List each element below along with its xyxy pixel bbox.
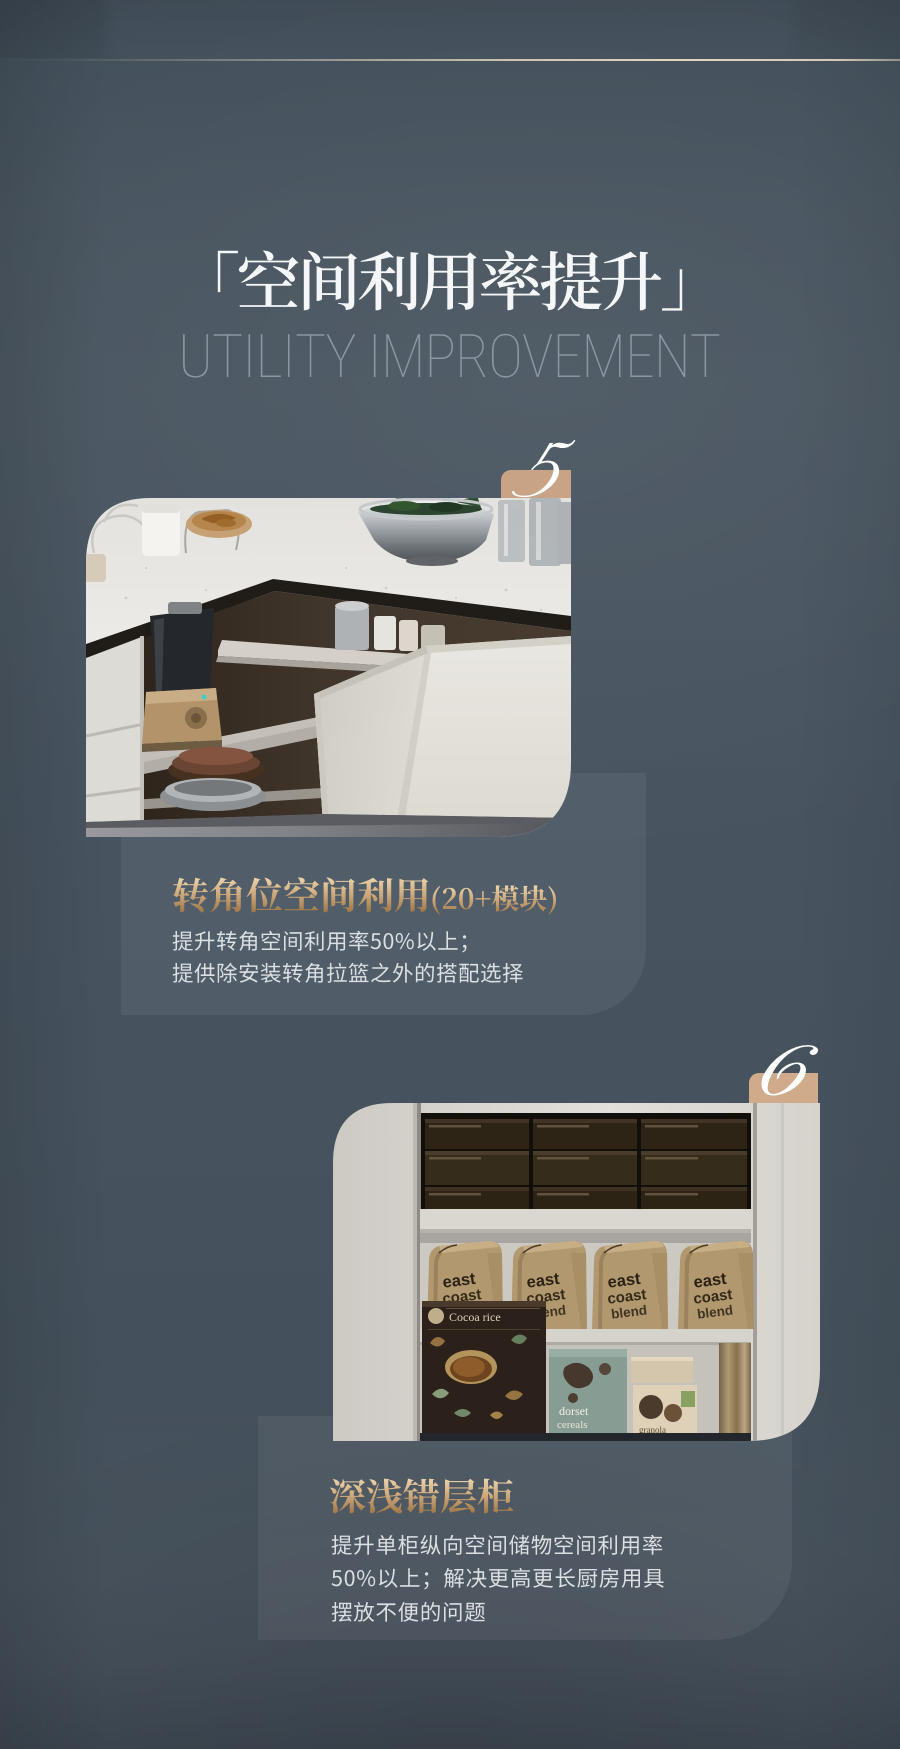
svg-text:cereals: cereals <box>557 1419 588 1431</box>
svg-text:dorset: dorset <box>559 1404 589 1418</box>
svg-text:Cocoa rice: Cocoa rice <box>449 1310 501 1324</box>
